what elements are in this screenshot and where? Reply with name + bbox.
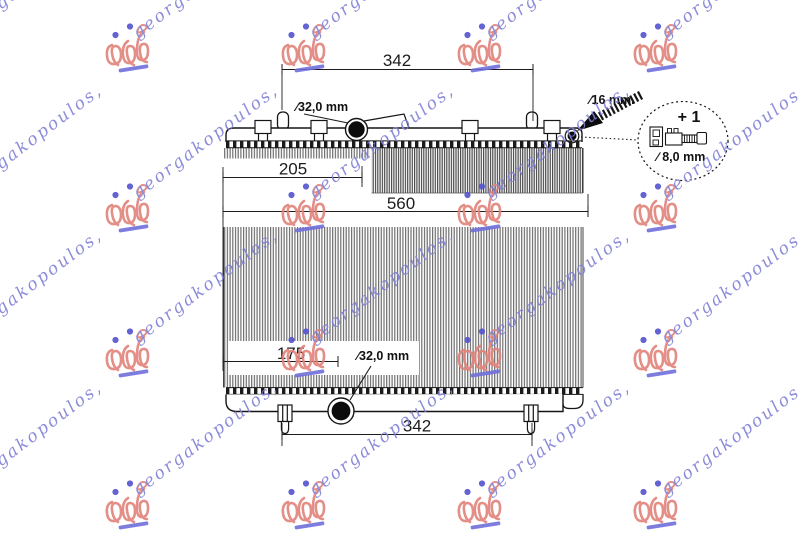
detail-bubble: + 1 ∕ 8,0 mm xyxy=(581,102,728,181)
dim-outlet-offset-label: 175 xyxy=(277,344,305,363)
inlet-diameter-label: ∕32,0 mm xyxy=(293,100,348,114)
dim-core-width-label: 560 xyxy=(387,194,415,213)
dim-inlet-offset-label: 205 xyxy=(279,160,307,179)
outlet-diameter-label: ∕32,0 mm xyxy=(354,349,409,363)
bottom-pin-left xyxy=(278,405,292,434)
connector-callout: ∕16 mm. xyxy=(577,93,641,131)
bottom-tank-outline xyxy=(226,394,563,412)
detail-leader-dotted xyxy=(581,137,638,140)
dim-top-span-label: 342 xyxy=(383,51,411,70)
bottom-pin-right xyxy=(524,405,538,434)
connector-port-opening xyxy=(568,132,577,141)
top-tank-outline xyxy=(226,128,582,142)
core-upper-band-left xyxy=(224,148,370,159)
extra-part-diameter-label: ∕ 8,0 mm xyxy=(654,150,706,164)
filler-neck-spout xyxy=(364,114,409,128)
extra-part-qty-label: + 1 xyxy=(678,109,701,126)
radiator-top-tank xyxy=(226,112,582,143)
core-upper-band-right xyxy=(372,148,584,193)
filler-neck-opening xyxy=(348,121,364,137)
bottom-outlet-opening xyxy=(332,402,351,421)
bottom-crimp-strip xyxy=(226,388,583,395)
radiator-catalog-image: 342 ∕32,0 mm 205 560 175 ∕32,0 mm 342 ∕1… xyxy=(0,0,800,547)
dim-bottom-span-label: 342 xyxy=(403,417,431,436)
radiator-technical-drawing: 342 ∕32,0 mm 205 560 175 ∕32,0 mm 342 ∕1… xyxy=(0,0,800,547)
bottom-tank-right-cap xyxy=(563,394,583,409)
